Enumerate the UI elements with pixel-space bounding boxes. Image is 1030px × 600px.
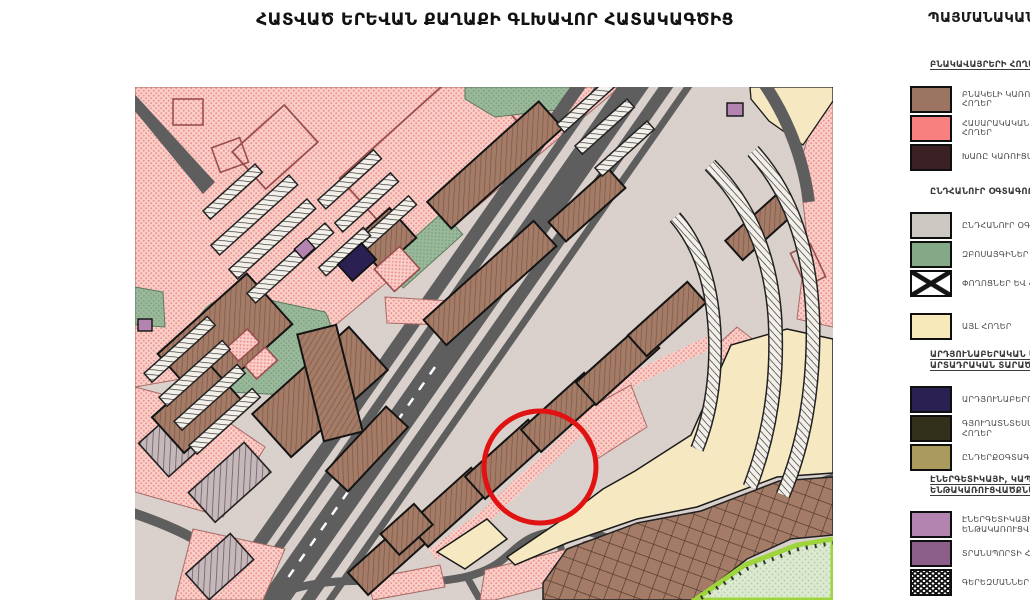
map-image: [135, 87, 833, 600]
legend-label: ՏՐԱՆՍՊՈՐՏԻ ՀՈՂԵՐ: [962, 549, 1030, 559]
legend-item-industrial: ԱՐԴՅՈՒՆԱԲԵՐՈՒԹՅԱՆ ՀՈՂԵՐ: [910, 386, 1030, 413]
page-title: ՀԱՏՎԱԾ ԵՐԵՎԱՆ ՔԱՂԱՔԻ ԳԼԽԱՎՈՐ ՀԱՏԱԿԱԳԾԻՑ: [145, 10, 845, 30]
legend-swatch-residential: [910, 86, 952, 113]
legend-title: ՊԱՅՄԱՆԱԿԱՆ ՆՇԱՆՆԵՐ: [928, 10, 1030, 26]
legend-swatch-transport: [910, 540, 952, 567]
legend-label: ԳԵՐԵԶՄԱՆՆԵՐ: [962, 578, 1029, 588]
legend-label: ՀԱՍԱՐԱԿԱԿԱՆ ԿԱՌՈՒՑԱՊԱՏՄԱՆՀՈՂԵՐ: [962, 119, 1030, 138]
legend-swatch-agricultural: [910, 415, 952, 442]
legend-label: ԸՆԴՀԱՆՈՒՐ ՕԳՏԱԳՈՐԾՄԱՆ ՀՈՂԵՐ: [962, 221, 1030, 231]
legend-label: ԱՐԴՅՈՒՆԱԲԵՐՈՒԹՅԱՆ ՀՈՂԵՐ: [962, 395, 1030, 405]
legend-swatch-other-lands: [910, 313, 952, 340]
legend-label: ԶԲՈՍԱՅԳԻՆԵՐ: [962, 250, 1029, 260]
legend-item-public: ՀԱՍԱՐԱԿԱԿԱՆ ԿԱՌՈՒՑԱՊԱՏՄԱՆՀՈՂԵՐ: [910, 115, 1030, 142]
legend-swatch-parks: [910, 241, 952, 268]
legend-group: ԲՆԱԿԱՎԱՅՐԵՐԻ ՀՈՂԵՐԲՆԱԿԵԼԻ ԿԱՌՈՒՑԱՊԱՏՄԱՆՀ…: [910, 60, 1030, 171]
legend-swatch-cemeteries: [910, 569, 952, 596]
legend-item-residential: ԲՆԱԿԵԼԻ ԿԱՌՈՒՑԱՊԱՏՄԱՆՀՈՂԵՐ: [910, 86, 1030, 113]
legend-swatch-common-use: [910, 212, 952, 239]
legend-item-agricultural: ԳՅՈՒՂԱՏՆՏԵՍԱԿԱՆ ՆՇԱՆԱԿՈՒԹՅԱՆՀՈՂԵՐ: [910, 415, 1030, 442]
legend-group: ԱՐԴՅՈՒՆԱԲԵՐԱԿԱՆ ԵՎԱՐՏԱԴՐԱԿԱՆ ՏԱՐԱԾՔՆԵՐԱՐ…: [910, 350, 1030, 471]
legend-swatch-streets-squares: [910, 270, 952, 297]
legend-label: ՓՈՂՈՑՆԵՐ ԵՎ ՀՐԱՊԱՐԱԿՆԵՐ: [962, 279, 1030, 289]
legend-groups: ԲՆԱԿԱՎԱՅՐԵՐԻ ՀՈՂԵՐԲՆԱԿԵԼԻ ԿԱՌՈՒՑԱՊԱՏՄԱՆՀ…: [910, 60, 1030, 596]
legend-section-heading: ԱՐԴՅՈՒՆԱԲԵՐԱԿԱՆ ԵՎԱՐՏԱԴՐԱԿԱՆ ՏԱՐԱԾՔՆԵՐ: [930, 350, 1030, 371]
master-plan-map: [135, 87, 833, 600]
legend-label: ԲՆԱԿԵԼԻ ԿԱՌՈՒՑԱՊԱՏՄԱՆՀՈՂԵՐ: [962, 90, 1030, 109]
legend-label: ԷՆԵՐԳԵՏԻԿԱՅԻ ԵՎ ԿԱՊԻԵՆԹԱԿԱՌՈՒՑՎԱԾՔՆԵՐ: [962, 515, 1030, 534]
legend-section-heading: ԲՆԱԿԱՎԱՅՐԵՐԻ ՀՈՂԵՐ: [930, 60, 1030, 71]
legend-label: ԳՅՈՒՂԱՏՆՏԵՍԱԿԱՆ ՆՇԱՆԱԿՈՒԹՅԱՆՀՈՂԵՐ: [962, 419, 1030, 438]
legend-item-cemeteries: ԳԵՐԵԶՄԱՆՆԵՐ: [910, 569, 1030, 596]
legend-item-parks: ԶԲՈՍԱՅԳԻՆԵՐ: [910, 241, 1030, 268]
legend-panel: ՊԱՅՄԱՆԱԿԱՆ ՆՇԱՆՆԵՐ ԲՆԱԿԱՎԱՅՐԵՐԻ ՀՈՂԵՐԲՆԱ…: [910, 0, 1030, 598]
legend-swatch-subsoil-use: [910, 444, 952, 471]
legend-label: ԽԱՌԸ ԿԱՌՈՒՑԱՊԱՏՄԱՆ ՀՈՂԵՐ: [962, 152, 1030, 162]
legend-item-other-lands: ԱՅԼ ՀՈՂԵՐ: [910, 313, 1030, 340]
legend-section-heading: ԸՆԴՀԱՆՈՒՐ ՕԳՏԱԳՈՐԾՄԱՆ ՀՈՂԵՐ: [930, 187, 1030, 198]
legend-item-subsoil-use: ԸՆԴԵՐՔՕԳՏԱԳՈՐԾՄԱՆ ՀՈՂԵՐ: [910, 444, 1030, 471]
legend-item-mixed: ԽԱՌԸ ԿԱՌՈՒՑԱՊԱՏՄԱՆ ՀՈՂԵՐ: [910, 144, 1030, 171]
legend-swatch-energy-infrastructure: [910, 511, 952, 538]
legend-group: ԱՅԼ ՀՈՂԵՐ: [910, 313, 1030, 340]
legend-group: ԷՆԵՐԳԵՏԻԿԱՅԻ, ԿԱՊԻԵՆԹԱԿԱՌՈՒՑՎԱԾՔՆԵՐԻ ՀՈՂ…: [910, 475, 1030, 596]
legend-swatch-public: [910, 115, 952, 142]
legend-swatch-mixed: [910, 144, 952, 171]
legend-item-common-use: ԸՆԴՀԱՆՈՒՐ ՕԳՏԱԳՈՐԾՄԱՆ ՀՈՂԵՐ: [910, 212, 1030, 239]
legend-group: ԸՆԴՀԱՆՈՒՐ ՕԳՏԱԳՈՐԾՄԱՆ ՀՈՂԵՐԸՆԴՀԱՆՈՒՐ ՕԳՏ…: [910, 187, 1030, 298]
legend-section-heading: ԷՆԵՐԳԵՏԻԿԱՅԻ, ԿԱՊԻԵՆԹԱԿԱՌՈՒՑՎԱԾՔՆԵՐԻ ՀՈՂ…: [930, 475, 1030, 496]
legend-item-transport: ՏՐԱՆՍՊՈՐՏԻ ՀՈՂԵՐ: [910, 540, 1030, 567]
legend-label: ԸՆԴԵՐՔՕԳՏԱԳՈՐԾՄԱՆ ՀՈՂԵՐ: [962, 453, 1030, 463]
legend-item-energy-infrastructure: ԷՆԵՐԳԵՏԻԿԱՅԻ ԵՎ ԿԱՊԻԵՆԹԱԿԱՌՈՒՑՎԱԾՔՆԵՐ: [910, 511, 1030, 538]
legend-item-streets-squares: ՓՈՂՈՑՆԵՐ ԵՎ ՀՐԱՊԱՐԱԿՆԵՐ: [910, 270, 1030, 297]
screenshot-root: { "title": "ՀԱՏՎԱԾ ԵՐԵՎԱՆ ՔԱՂԱՔԻ ԳԼԽԱՎՈՐ…: [0, 0, 1030, 600]
legend-swatch-industrial: [910, 386, 952, 413]
legend-label: ԱՅԼ ՀՈՂԵՐ: [962, 322, 1012, 332]
